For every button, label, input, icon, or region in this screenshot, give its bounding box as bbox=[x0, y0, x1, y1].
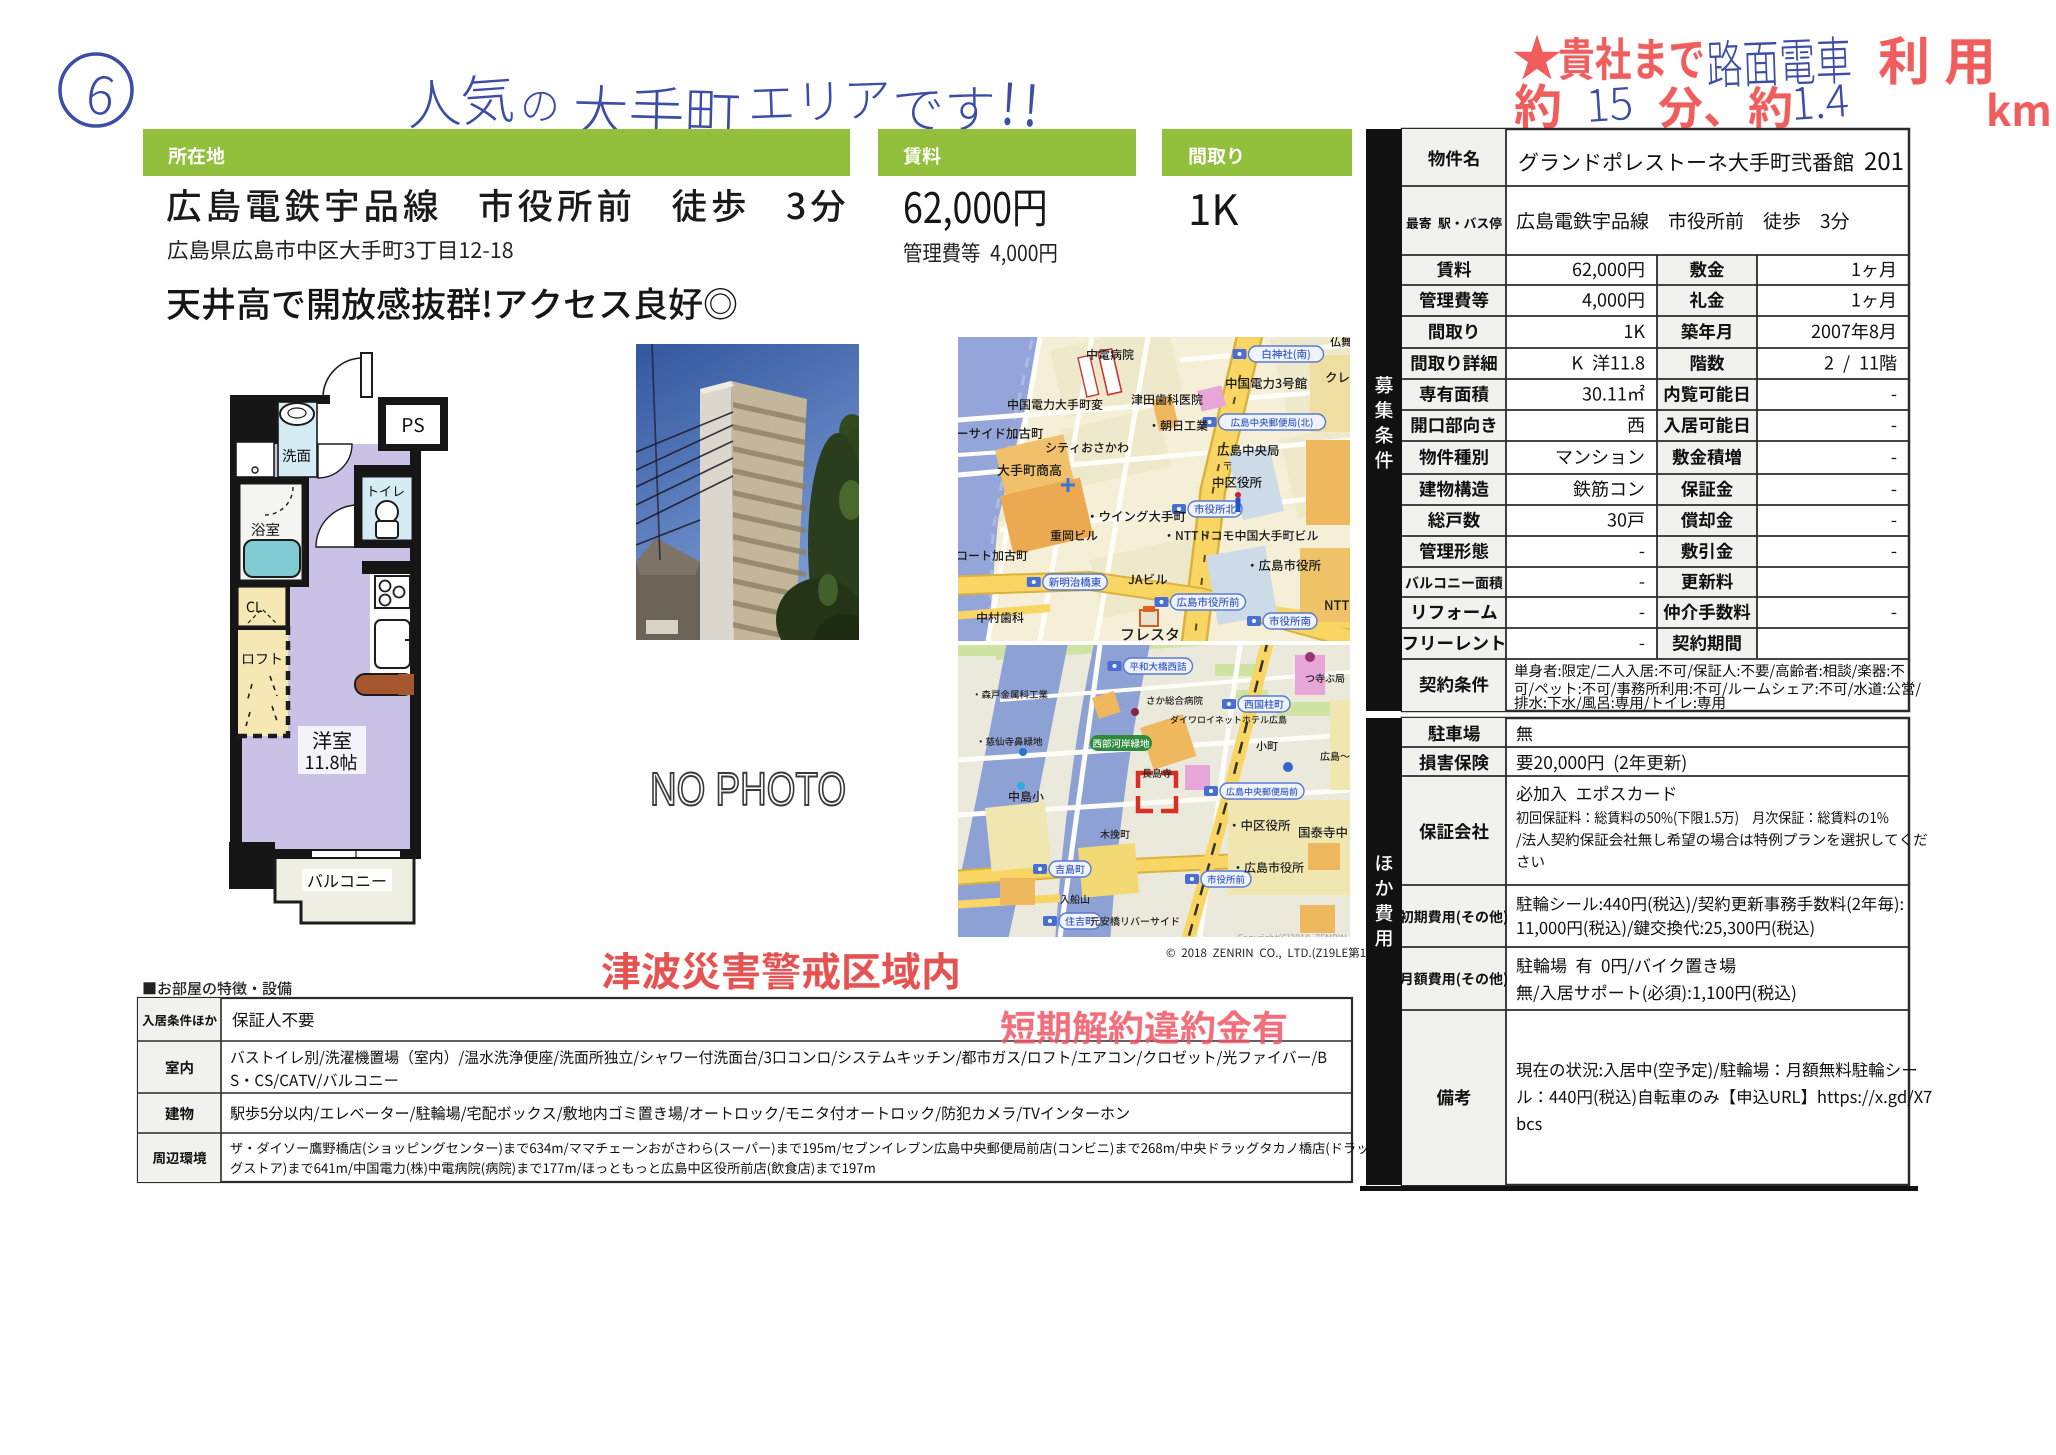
svg-text:NO PHOTO: NO PHOTO bbox=[650, 763, 846, 815]
